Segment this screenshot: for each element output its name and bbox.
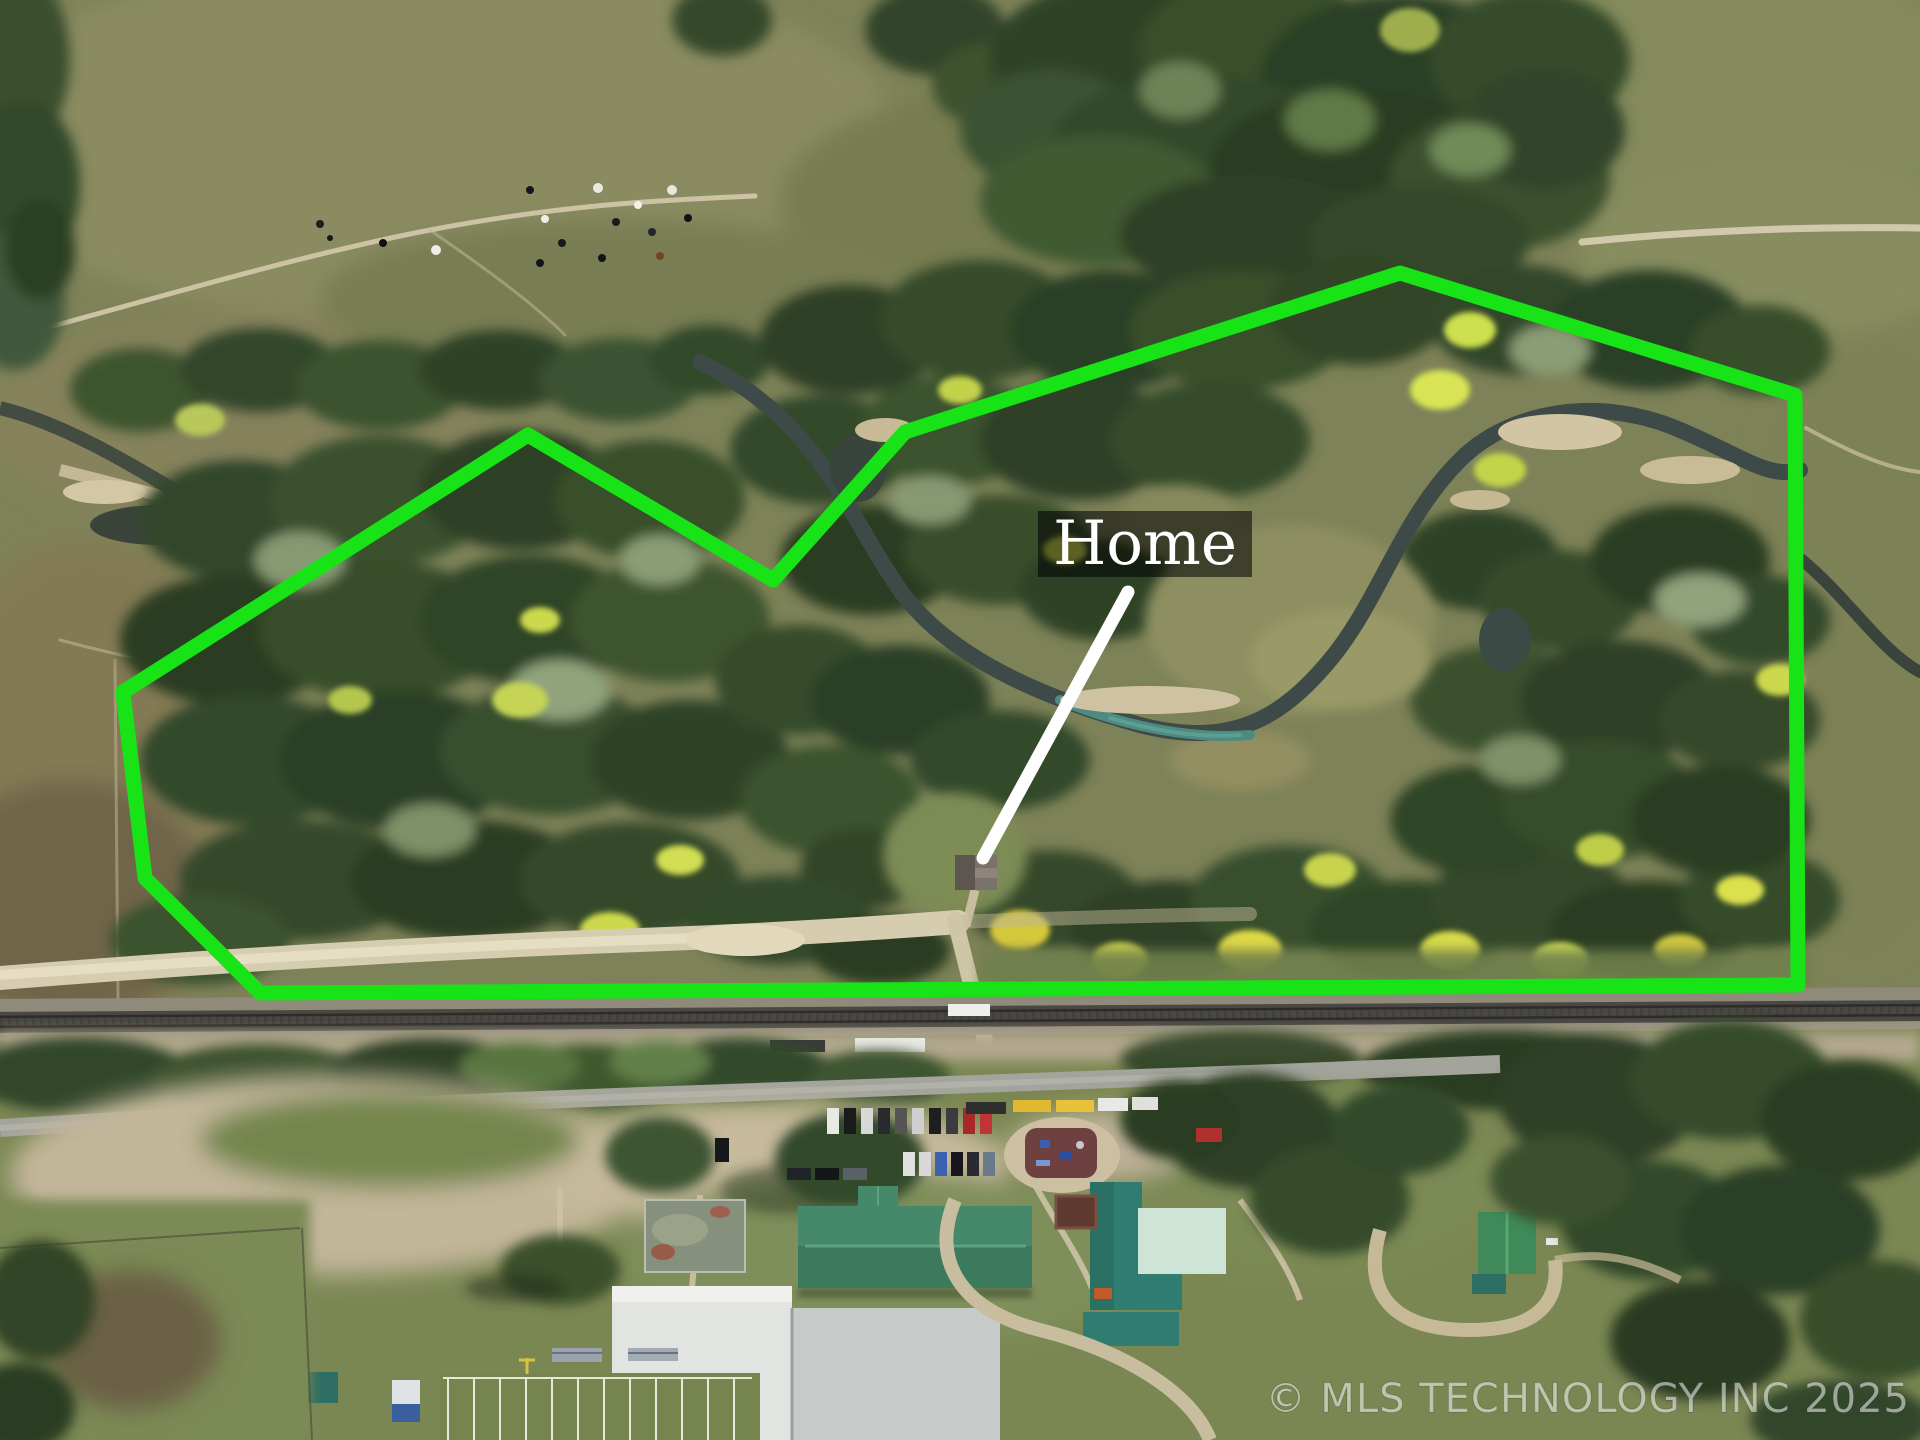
pasture-southwest bbox=[0, 1200, 312, 1440]
white-trailer bbox=[855, 1038, 925, 1052]
playground bbox=[1004, 1117, 1120, 1193]
home-label-text: Home bbox=[1053, 508, 1237, 579]
white-truck bbox=[948, 1004, 990, 1016]
red-truck bbox=[1196, 1128, 1222, 1142]
home-label: Home bbox=[1038, 508, 1252, 579]
aerial-photo: Home © MLS TECHNOLOGY INC 2025 bbox=[0, 0, 1920, 1440]
dumpster bbox=[1094, 1288, 1112, 1299]
pavilion bbox=[1056, 1196, 1096, 1228]
watermark-text: © MLS TECHNOLOGY INC 2025 bbox=[1266, 1376, 1910, 1422]
house bbox=[955, 855, 997, 890]
watermark: © MLS TECHNOLOGY INC 2025 bbox=[1266, 1376, 1910, 1422]
basketball-court bbox=[645, 1200, 745, 1272]
